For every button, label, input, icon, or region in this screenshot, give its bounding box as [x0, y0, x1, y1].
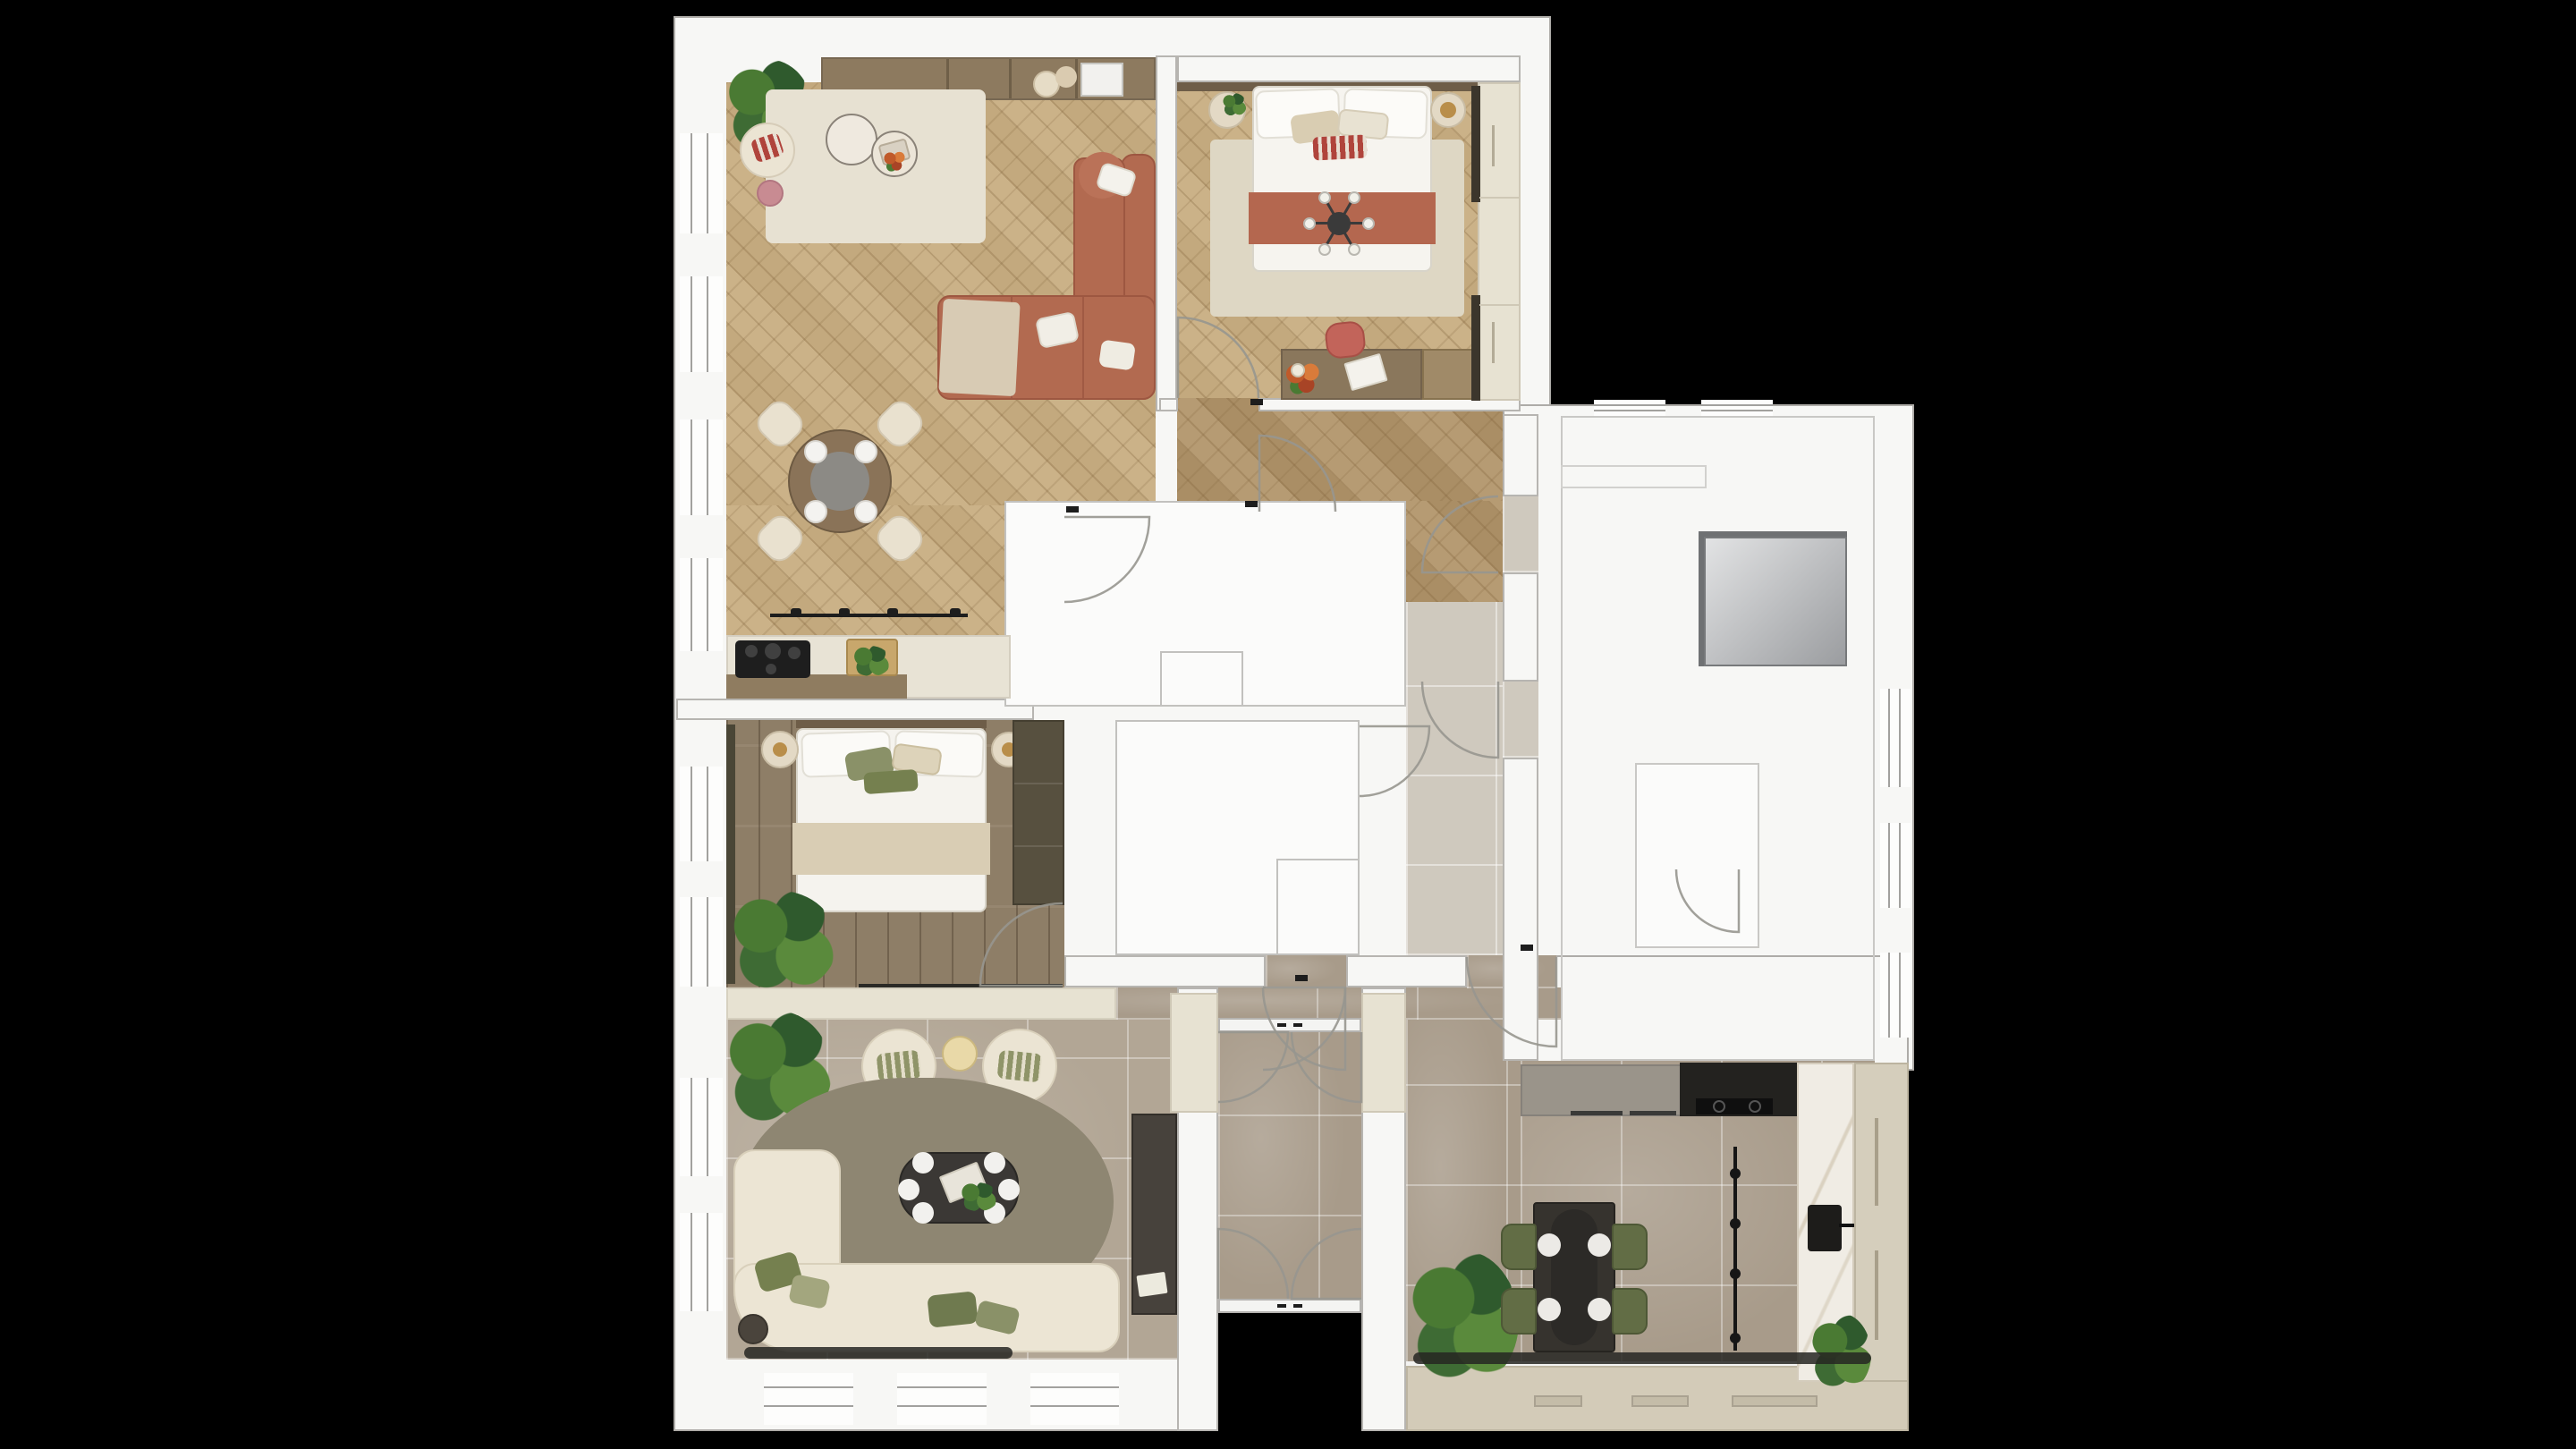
pendant-cone-4	[950, 608, 961, 617]
headboard-bedroom2	[796, 720, 987, 728]
door-handle-bathroom1b	[1245, 501, 1258, 507]
fan-cup-5	[1318, 191, 1331, 204]
dining-plate-1	[804, 440, 827, 463]
entry-door-top-handle-2	[1293, 1023, 1302, 1027]
entry-door-bottom	[1218, 1299, 1361, 1313]
shelf-plate-2	[1055, 66, 1077, 88]
wall-bedroom1-bottom-left	[1159, 398, 1178, 411]
pillar-left-cream	[1170, 993, 1218, 1113]
sofa-blanket	[938, 299, 1020, 396]
sofa-pillow-3	[1098, 340, 1136, 371]
burner-3	[788, 647, 801, 659]
kitchen-oven-handle-1	[1571, 1111, 1623, 1115]
floor-strip-gap-2	[1503, 682, 1538, 758]
dining-plate-4	[854, 500, 877, 523]
wall-living-bottom	[676, 699, 1034, 720]
kitchen-cabinet-handle-1	[1875, 1118, 1878, 1206]
wardrobe1-divider-2	[1479, 304, 1519, 306]
wall-bedroom1-top	[1177, 55, 1521, 82]
pebble-strip-kitchen	[1413, 1352, 1871, 1364]
wardrobe-bedroom1	[1478, 82, 1521, 401]
floor-vestibule	[1218, 1020, 1361, 1317]
tv-magazine	[1136, 1272, 1167, 1297]
pebble-strip-lounge	[744, 1347, 1013, 1359]
shelf-books	[1080, 63, 1123, 97]
window-top-common-1	[1594, 400, 1665, 416]
fan-cup-1	[1362, 217, 1375, 230]
window-left-1	[680, 133, 723, 233]
wall-commonzone-left-c	[1503, 758, 1538, 1061]
entry-exterior-notch	[1218, 1313, 1361, 1431]
kitchen-plate-3	[1538, 1298, 1561, 1321]
door-handle-hall	[1295, 975, 1308, 981]
kitchen-chair-2	[1501, 1288, 1537, 1335]
track-knob-1	[1730, 1168, 1741, 1179]
burner-4	[766, 664, 776, 674]
floor-strip-gap-1	[1503, 496, 1538, 572]
commonzone-stub-room	[1635, 763, 1759, 948]
plant-bedroom2	[728, 891, 837, 991]
window-left-2	[680, 276, 723, 372]
wardrobe2-line-2	[1014, 845, 1063, 847]
nightstand-1b-lamp	[1440, 102, 1456, 118]
wardrobe1-handle-1	[1492, 125, 1495, 166]
kitchen-table-runner	[1551, 1209, 1597, 1345]
kitchen-oven-handle-2	[1630, 1111, 1676, 1115]
entry-door-bottom-handle-2	[1293, 1304, 1302, 1308]
burner-1	[745, 645, 758, 657]
window-left-6	[680, 897, 723, 987]
window-left-3	[680, 419, 723, 515]
kitchen-faucet	[1839, 1224, 1855, 1227]
sofa-seam-2	[1082, 297, 1084, 398]
lounge-table-plant	[959, 1182, 998, 1211]
window-right-2	[1880, 823, 1911, 908]
window-bottom-1	[764, 1373, 853, 1425]
kitchen-plate-1	[1538, 1233, 1561, 1257]
wardrobe-bedroom2	[1013, 720, 1064, 905]
wall-hall-top-mid	[1346, 955, 1467, 987]
lounge-side-table	[738, 1314, 768, 1344]
lounge-cup-1	[912, 1152, 934, 1174]
kitchen-cabinet-recess-1	[1534, 1395, 1582, 1407]
track-knob-2	[1730, 1218, 1741, 1229]
coffee-table-flowers	[882, 150, 909, 174]
lounge-armchair-2-cushion	[996, 1050, 1042, 1083]
window-right-1	[1880, 689, 1911, 787]
fan-cup-4	[1303, 217, 1316, 230]
bathroom-1-step	[1160, 651, 1243, 707]
kitchen-plate-2	[1588, 1233, 1611, 1257]
kitchen-chair-1	[1501, 1224, 1537, 1270]
bed2-pillow-5	[863, 769, 919, 794]
floor-plan-render	[0, 0, 2576, 1449]
kitchen-ring-2	[1749, 1100, 1761, 1113]
pendant-cone-3	[887, 608, 898, 617]
entry-door-bottom-handle-1	[1277, 1304, 1286, 1308]
commonzone-wall-band	[1561, 465, 1707, 488]
pillar-right-cream	[1361, 993, 1406, 1113]
wall-commonzone-left-b	[1503, 572, 1538, 682]
desk-cabinet	[1422, 349, 1478, 400]
floor-strip-wood	[1406, 501, 1503, 602]
lounge-cup-4	[998, 1179, 1020, 1200]
kitchen-sink	[1808, 1205, 1842, 1251]
door-handle-hall-right	[1521, 945, 1533, 951]
nightstand-2a-lamp	[773, 742, 787, 757]
track-knob-3	[1730, 1268, 1741, 1279]
kitchen-cabinet-recess-3	[1732, 1395, 1818, 1407]
wall-hall-top-left	[1064, 955, 1266, 987]
lounge-pillow-3	[927, 1291, 978, 1327]
floor-strip-tile	[1406, 602, 1503, 955]
bed2-throw	[792, 823, 990, 875]
shelf-divider-2	[1009, 59, 1012, 98]
desk-lamp	[1291, 363, 1305, 377]
board-herbs	[852, 646, 891, 676]
bathroom-2-shower	[1276, 859, 1360, 955]
fan-cup-2	[1348, 243, 1360, 256]
commonzone-inner-outline	[1561, 416, 1875, 1061]
side-table-yellow	[942, 1036, 978, 1072]
kitchen-counter-grey	[1521, 1064, 1690, 1116]
kitchen-plate-4	[1588, 1298, 1611, 1321]
entry-door-top	[1218, 1018, 1361, 1032]
kitchen-chair-3	[1612, 1224, 1648, 1270]
floor-corridor	[1177, 398, 1503, 501]
window-bottom-2	[897, 1373, 987, 1425]
door-handle-bathroom1	[1066, 506, 1079, 513]
kitchen-cabinet-handle-2	[1875, 1250, 1878, 1340]
stairwell-skylight	[1704, 537, 1847, 666]
window-left-5	[680, 767, 723, 861]
wardrobe1-divider-1	[1479, 197, 1519, 199]
wardrobe1-clothes-a	[1471, 86, 1480, 202]
fan-cup-3	[1318, 243, 1331, 256]
kitchen-ring-1	[1713, 1100, 1725, 1113]
track-knob-4	[1730, 1333, 1741, 1343]
slider-track-bedroom2	[859, 984, 1063, 987]
burner-2	[765, 643, 781, 659]
bed1-pillow-5	[1312, 134, 1367, 160]
desk-chair	[1324, 320, 1367, 360]
pouf-pink	[757, 180, 784, 207]
entry-door-top-handle-1	[1277, 1023, 1286, 1027]
dining-plate-2	[854, 440, 877, 463]
window-left-4	[680, 558, 723, 651]
window-left-8	[680, 1213, 723, 1311]
wardrobe2-line-1	[1014, 783, 1063, 784]
window-bottom-3	[1030, 1373, 1119, 1425]
door-handle-bedroom1	[1250, 399, 1263, 405]
coffee-table-1	[826, 114, 877, 165]
floor-hall-gap-1	[1266, 955, 1346, 988]
kitchen-cooktop	[1696, 1098, 1773, 1114]
nightstand-1a-plant	[1222, 93, 1247, 116]
wardrobe1-handle-2	[1492, 322, 1495, 363]
lounge-cup-2	[984, 1152, 1005, 1174]
lounge-cup-3	[898, 1179, 919, 1200]
kitchen-chair-4	[1612, 1288, 1648, 1335]
kitchenette-counter-wood	[726, 674, 907, 699]
wall-commonzone-left-a	[1503, 414, 1538, 496]
wall-living-bedroom1	[1156, 55, 1177, 411]
wardrobe1-clothes-b	[1471, 295, 1480, 401]
lounge-cup-5	[912, 1202, 934, 1224]
pendant-cone-1	[791, 608, 801, 617]
fan-cup-6	[1348, 191, 1360, 204]
dining-plate-3	[804, 500, 827, 523]
pendant-cone-2	[839, 608, 850, 617]
window-right-3	[1880, 953, 1911, 1038]
kitchen-cabinet-recess-2	[1631, 1395, 1689, 1407]
window-left-7	[680, 1078, 723, 1176]
fan-hub	[1327, 212, 1351, 235]
window-top-common-2	[1701, 400, 1773, 416]
